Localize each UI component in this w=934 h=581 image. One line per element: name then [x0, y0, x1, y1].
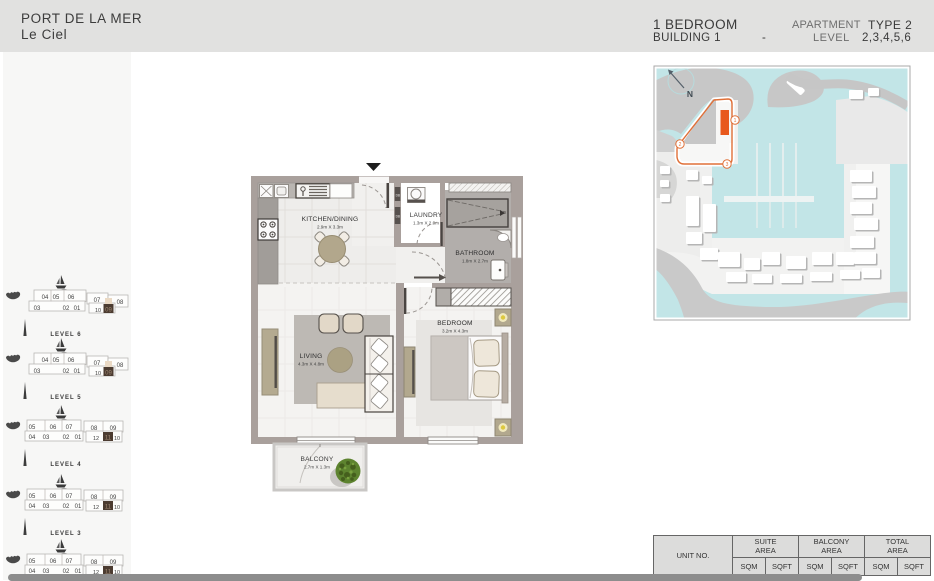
- svg-text:10: 10: [95, 371, 101, 377]
- svg-text:08: 08: [117, 300, 124, 306]
- svg-text:11: 11: [105, 505, 112, 511]
- svg-text:10: 10: [114, 436, 120, 442]
- svg-text:03: 03: [43, 504, 50, 510]
- svg-text:06: 06: [68, 358, 75, 364]
- svg-text:03: 03: [34, 306, 41, 312]
- svg-text:2: 2: [679, 142, 682, 148]
- svg-text:LEVEL 6: LEVEL 6: [50, 332, 81, 338]
- svg-text:N: N: [687, 89, 693, 99]
- svg-text:LEVEL 4: LEVEL 4: [50, 462, 81, 468]
- svg-text:LEVEL 5: LEVEL 5: [50, 395, 81, 401]
- svg-text:05: 05: [29, 425, 36, 431]
- svg-text:LEVEL 3: LEVEL 3: [50, 531, 81, 537]
- svg-text:01: 01: [75, 504, 82, 510]
- svg-text:03: 03: [43, 435, 50, 441]
- svg-text:03: 03: [34, 369, 41, 375]
- svg-text:05: 05: [29, 494, 36, 500]
- svg-text:09: 09: [105, 308, 112, 314]
- svg-text:06: 06: [68, 295, 75, 301]
- svg-text:02: 02: [63, 306, 70, 312]
- svg-text:01: 01: [75, 435, 82, 441]
- svg-text:05: 05: [53, 358, 60, 364]
- svg-text:1: 1: [734, 118, 737, 124]
- svg-text:09: 09: [110, 426, 117, 432]
- svg-text:09: 09: [110, 495, 117, 501]
- svg-text:08: 08: [117, 363, 124, 369]
- svg-text:02: 02: [63, 369, 70, 375]
- svg-text:04: 04: [29, 504, 36, 510]
- svg-text:05: 05: [53, 295, 60, 301]
- svg-text:01: 01: [74, 369, 81, 375]
- svg-text:07: 07: [94, 361, 101, 367]
- svg-text:01: 01: [74, 306, 81, 312]
- svg-text:08: 08: [91, 560, 98, 566]
- svg-text:08: 08: [91, 495, 98, 501]
- svg-text:06: 06: [50, 425, 57, 431]
- svg-text:04: 04: [29, 435, 36, 441]
- svg-text:06: 06: [50, 494, 57, 500]
- svg-text:06: 06: [50, 559, 57, 565]
- svg-text:09: 09: [110, 560, 117, 566]
- svg-text:12: 12: [93, 436, 99, 442]
- svg-text:02: 02: [63, 504, 70, 510]
- svg-text:02: 02: [63, 435, 70, 441]
- svg-text:07: 07: [66, 425, 73, 431]
- svg-text:07: 07: [94, 298, 101, 304]
- svg-text:11: 11: [105, 436, 112, 442]
- svg-text:3: 3: [726, 162, 729, 168]
- svg-text:04: 04: [42, 358, 49, 364]
- svg-text:04: 04: [42, 295, 49, 301]
- svg-text:09: 09: [105, 371, 112, 377]
- svg-text:05: 05: [29, 559, 36, 565]
- svg-text:08: 08: [91, 426, 98, 432]
- svg-text:07: 07: [66, 559, 73, 565]
- svg-text:10: 10: [114, 505, 120, 511]
- svg-text:07: 07: [66, 494, 73, 500]
- svg-text:10: 10: [95, 308, 101, 314]
- svg-text:12: 12: [93, 505, 99, 511]
